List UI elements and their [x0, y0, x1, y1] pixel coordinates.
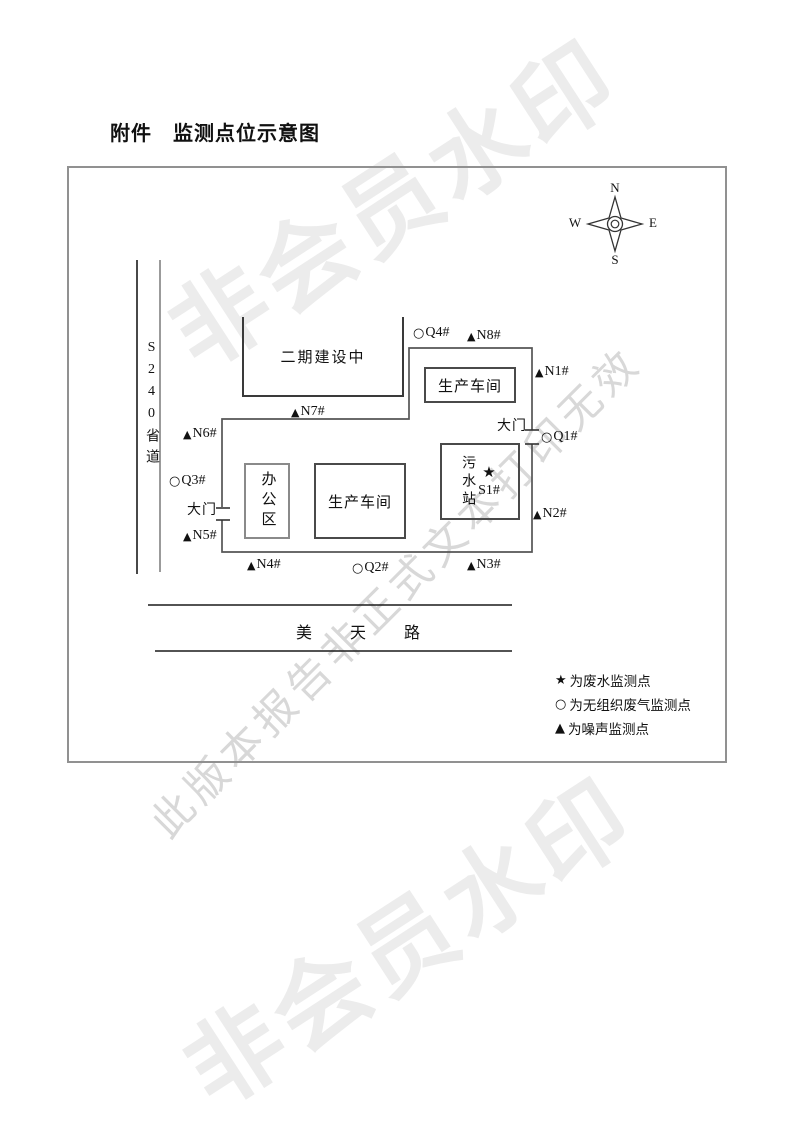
building-workshop-south-label: 生产车间: [328, 491, 392, 512]
building-phase2: 二期建设中: [242, 317, 404, 397]
compass-north-label: N: [607, 180, 623, 196]
noise-point-icon: ▲: [183, 531, 191, 542]
legend-gas-label: 为无组织废气监测点: [569, 694, 691, 714]
legend-gas: ○ 为无组织废气监测点: [555, 694, 691, 714]
point-n2-label: N2#: [542, 506, 566, 522]
document-page: 非会员水印 此版本报告非正式文本打印无效 非会员水印 附件 监测点位示意图: [0, 0, 793, 1122]
building-phase2-label: 二期建设中: [280, 346, 365, 367]
point-n6: ▲ N6#: [183, 426, 217, 442]
point-n7-label: N7#: [300, 404, 324, 420]
legend-noise-label: 为噪声监测点: [568, 718, 649, 738]
legend: ★ 为废水监测点 ○ 为无组织废气监测点 ▲ 为噪声监测点: [555, 670, 691, 738]
compass-rose-icon: [588, 197, 642, 251]
page-title: 附件 监测点位示意图: [110, 117, 320, 146]
point-s1-label: S1#: [478, 482, 500, 500]
point-n8-label: N8#: [476, 328, 500, 344]
gas-point-icon: ○: [352, 562, 363, 575]
noise-point-icon: ▲: [183, 429, 191, 440]
noise-point-icon: ▲: [291, 407, 299, 418]
point-q3-label: Q3#: [181, 473, 205, 489]
point-n3: ▲ N3#: [467, 557, 501, 573]
wastewater-point-icon: ★: [555, 674, 567, 687]
gate-right-label: 大门: [497, 415, 527, 435]
gas-point-icon: ○: [169, 475, 180, 488]
noise-point-icon: ▲: [247, 560, 255, 571]
noise-point-icon: ▲: [533, 509, 541, 520]
point-q3: ○ Q3#: [169, 473, 205, 489]
building-workshop-north-label: 生产车间: [438, 375, 502, 396]
point-n1: ▲ N1#: [535, 364, 569, 380]
compass-east-label: E: [645, 215, 661, 231]
noise-point-icon: ▲: [467, 560, 475, 571]
compass-west-label: W: [567, 215, 583, 231]
point-n5-label: N5#: [192, 528, 216, 544]
diagram-frame: N S W E S240省道 美 天 路 二期建设中 生产车间 办公区 生产车间…: [67, 166, 727, 763]
watermark-member-bottom: 非会员水印: [153, 739, 656, 1122]
point-n4-label: N4#: [256, 557, 280, 573]
legend-noise: ▲ 为噪声监测点: [555, 718, 691, 738]
building-office: 办公区: [244, 463, 290, 539]
gas-point-icon: ○: [555, 698, 566, 711]
point-n6-label: N6#: [192, 426, 216, 442]
point-n3-label: N3#: [476, 557, 500, 573]
building-sewage-station: 污水站 ★ S1#: [440, 443, 520, 520]
noise-point-icon: ▲: [467, 331, 475, 342]
legend-wastewater: ★ 为废水监测点: [555, 670, 691, 690]
building-workshop-south: 生产车间: [314, 463, 406, 539]
noise-point-icon: ▲: [555, 722, 565, 735]
gas-point-icon: ○: [541, 431, 552, 444]
meitian-road-label: 美 天 路: [229, 619, 489, 643]
wastewater-point-icon: ★: [482, 463, 495, 482]
building-workshop-north: 生产车间: [424, 367, 516, 403]
point-n4: ▲ N4#: [247, 557, 281, 573]
point-n5: ▲ N5#: [183, 528, 217, 544]
point-n7: ▲ N7#: [291, 404, 325, 420]
point-n8: ▲ N8#: [467, 328, 501, 344]
building-office-label: 办公区: [260, 471, 275, 531]
s240-road-label: S240省道: [140, 340, 162, 475]
legend-wastewater-label: 为废水监测点: [570, 670, 651, 690]
point-q4-label: Q4#: [425, 325, 449, 341]
point-q1: ○ Q1#: [541, 429, 577, 445]
point-q1-label: Q1#: [553, 429, 577, 445]
noise-point-icon: ▲: [535, 367, 543, 378]
point-n1-label: N1#: [544, 364, 568, 380]
compass-south-label: S: [607, 252, 623, 268]
point-q2: ○ Q2#: [352, 560, 388, 576]
point-s1: ★ S1#: [478, 463, 500, 499]
point-q2-label: Q2#: [364, 560, 388, 576]
gate-left-label: 大门: [187, 499, 217, 519]
gas-point-icon: ○: [413, 327, 424, 340]
point-n2: ▲ N2#: [533, 506, 567, 522]
point-q4: ○ Q4#: [413, 325, 449, 341]
building-sewage-label: 污水站: [460, 455, 474, 509]
